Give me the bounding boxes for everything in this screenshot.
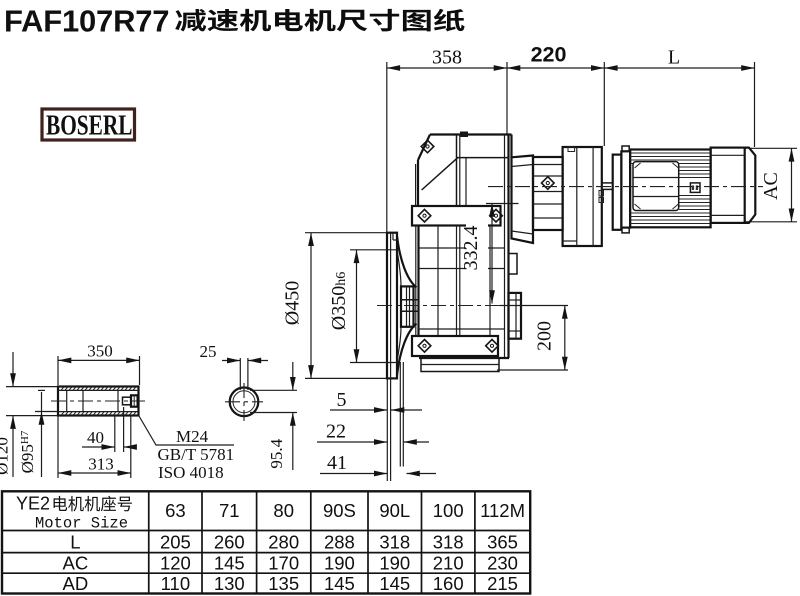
svg-text:Ø95H7: Ø95H7 <box>18 430 37 473</box>
svg-text:120: 120 <box>160 553 191 574</box>
svg-text:230: 230 <box>487 553 518 574</box>
svg-text:FAF107R77: FAF107R77 <box>4 4 169 39</box>
svg-text:313: 313 <box>88 455 114 474</box>
svg-text:318: 318 <box>379 532 410 553</box>
svg-text:BOSERL: BOSERL <box>46 110 133 142</box>
svg-text:112M: 112M <box>480 500 525 521</box>
svg-text:5: 5 <box>337 389 347 411</box>
svg-text:90S: 90S <box>323 500 356 521</box>
svg-text:145: 145 <box>379 573 410 594</box>
svg-text:40: 40 <box>87 428 104 447</box>
svg-text:Ø450: Ø450 <box>282 281 304 325</box>
svg-text:332.4: 332.4 <box>460 226 482 271</box>
svg-text:M24: M24 <box>176 427 209 446</box>
svg-text:71: 71 <box>219 500 240 521</box>
svg-text:135: 135 <box>268 573 299 594</box>
svg-text:145: 145 <box>324 573 355 594</box>
svg-text:350: 350 <box>87 342 113 361</box>
svg-text:318: 318 <box>433 532 464 553</box>
svg-text:100: 100 <box>433 500 464 521</box>
svg-text:190: 190 <box>324 553 355 574</box>
svg-text:Ø350h6: Ø350h6 <box>328 272 350 330</box>
svg-text:205: 205 <box>160 532 191 553</box>
svg-text:90L: 90L <box>379 500 410 521</box>
svg-text:358: 358 <box>432 47 462 69</box>
svg-text:220: 220 <box>531 43 567 67</box>
svg-text:200: 200 <box>534 321 556 351</box>
svg-text:Motor Size: Motor Size <box>35 515 128 533</box>
svg-text:288: 288 <box>324 532 355 553</box>
svg-text:ISO 4018: ISO 4018 <box>158 463 224 482</box>
svg-text:63: 63 <box>165 500 186 521</box>
svg-text:L: L <box>70 532 80 553</box>
svg-text:41: 41 <box>327 452 347 474</box>
svg-text:215: 215 <box>487 573 518 594</box>
svg-text:210: 210 <box>433 553 464 574</box>
svg-text:AC: AC <box>63 553 89 574</box>
svg-text:365: 365 <box>487 532 518 553</box>
svg-text:YE2: YE2 <box>16 494 50 514</box>
svg-text:260: 260 <box>214 532 245 553</box>
svg-text:190: 190 <box>379 553 410 574</box>
svg-text:145: 145 <box>214 553 245 574</box>
svg-text:AC: AC <box>760 172 782 200</box>
svg-text:160: 160 <box>433 573 464 594</box>
svg-text:170: 170 <box>268 553 299 574</box>
svg-text:280: 280 <box>268 532 299 553</box>
svg-text:GB/T 5781: GB/T 5781 <box>158 445 235 464</box>
svg-text:22: 22 <box>326 421 346 443</box>
svg-text:Ø120: Ø120 <box>0 437 12 475</box>
svg-text:110: 110 <box>161 573 191 594</box>
svg-text:130: 130 <box>214 573 245 594</box>
svg-text:95.4: 95.4 <box>267 438 286 468</box>
svg-text:25: 25 <box>200 342 217 361</box>
svg-text:80: 80 <box>273 500 294 521</box>
svg-text:AD: AD <box>63 573 89 594</box>
svg-text:L: L <box>668 47 680 69</box>
